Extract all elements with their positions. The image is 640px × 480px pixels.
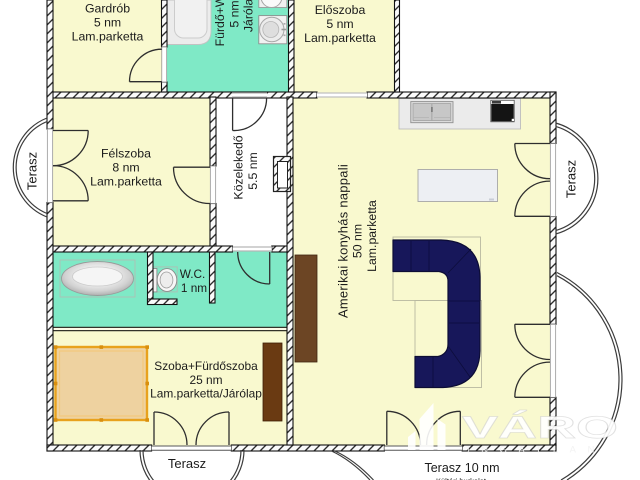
svg-text:Közelekedő: Közelekedő: [232, 135, 246, 199]
svg-text:Terasz 10 nm: Terasz 10 nm: [424, 461, 499, 475]
svg-text:5 nm: 5 nm: [228, 0, 242, 27]
svg-text:1 nm: 1 nm: [181, 281, 207, 295]
svg-text:Terasz: Terasz: [168, 456, 206, 471]
svg-text:VÁRO: VÁRO: [462, 409, 618, 445]
svg-text:5 nm: 5 nm: [94, 16, 121, 30]
svg-text:5.5 nm: 5.5 nm: [246, 152, 260, 190]
svg-text:25 nm: 25 nm: [189, 373, 222, 387]
svg-text:5 nm: 5 nm: [326, 17, 353, 31]
svg-text:Járólap: Járólap: [242, 0, 256, 32]
svg-text:Szoba+Fürdőszoba: Szoba+Fürdőszoba: [154, 359, 258, 373]
svg-text:W.C.: W.C.: [180, 267, 206, 281]
svg-text:Lam.parketta: Lam.parketta: [90, 175, 162, 189]
svg-text:Lam.parketta: Lam.parketta: [72, 30, 144, 44]
svg-text:Gardrób: Gardrób: [85, 2, 130, 16]
svg-text:Félszoba: Félszoba: [101, 147, 151, 161]
svg-text:Amerikai konyhás nappali: Amerikai konyhás nappali: [336, 164, 351, 318]
svg-text:50 nm: 50 nm: [351, 224, 365, 258]
svg-text:Lam.parketta: Lam.parketta: [304, 31, 376, 45]
svg-text:Előszoba: Előszoba: [315, 3, 366, 17]
svg-text:Lam.parketta: Lam.parketta: [365, 200, 379, 272]
svg-text:Fürdő+WC: Fürdő+WC: [213, 0, 227, 46]
svg-text:Terasz: Terasz: [25, 152, 40, 190]
svg-text:8 nm: 8 nm: [112, 161, 139, 175]
svg-text:Kültéri burkolat: Kültéri burkolat: [436, 477, 487, 480]
svg-text:INGATLAN: INGATLAN: [467, 445, 606, 456]
svg-text:Terasz: Terasz: [564, 160, 579, 198]
svg-text:Lam.parketta/Járólap: Lam.parketta/Járólap: [150, 387, 262, 401]
